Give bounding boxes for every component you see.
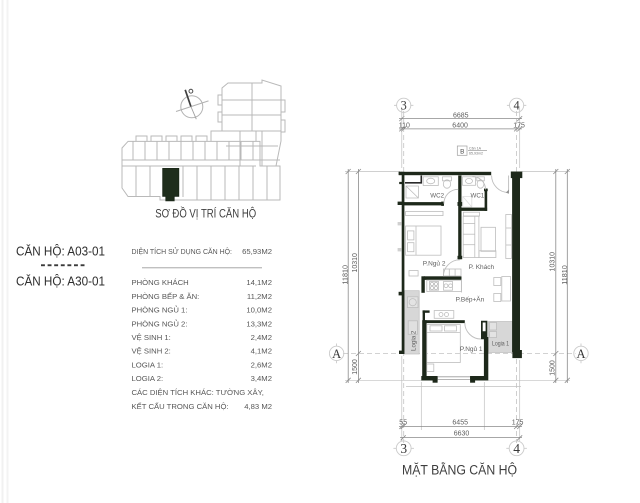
svg-text:CĂN HỘ: A30-01: CĂN HỘ: A30-01 bbox=[16, 274, 105, 289]
svg-text:PHÒNG NGỦ 1:: PHÒNG NGỦ 1: bbox=[132, 306, 188, 315]
svg-text:P.Bếp+Ăn: P.Bếp+Ăn bbox=[456, 295, 485, 304]
svg-text:14,1M2: 14,1M2 bbox=[246, 278, 272, 287]
svg-text:LOGIA 2:: LOGIA 2: bbox=[132, 374, 164, 383]
svg-text:6685: 6685 bbox=[453, 112, 469, 119]
svg-text:3: 3 bbox=[401, 99, 407, 113]
svg-text:CĂN HỘ: A03-01: CĂN HỘ: A03-01 bbox=[16, 244, 105, 259]
svg-text:175: 175 bbox=[512, 420, 524, 427]
svg-text:4,83 M2: 4,83 M2 bbox=[244, 402, 272, 411]
svg-text:DIỆN TÍCH SỬ DỤNG CĂN HỘ:: DIỆN TÍCH SỬ DỤNG CĂN HỘ: bbox=[132, 247, 233, 256]
svg-text:65,93m2: 65,93m2 bbox=[469, 152, 483, 156]
svg-text:13,3M2: 13,3M2 bbox=[246, 320, 272, 329]
svg-text:WC1: WC1 bbox=[471, 193, 485, 200]
svg-text:Logia 2: Logia 2 bbox=[411, 330, 418, 351]
svg-text:6630: 6630 bbox=[454, 431, 470, 438]
svg-text:110: 110 bbox=[399, 123, 410, 130]
svg-text:KẾT CẤU TRONG CĂN HỘ:: KẾT CẤU TRONG CĂN HỘ: bbox=[132, 401, 229, 411]
svg-text:3: 3 bbox=[400, 441, 407, 456]
svg-text:4: 4 bbox=[514, 99, 520, 113]
svg-text:4,1M2: 4,1M2 bbox=[251, 347, 272, 356]
svg-text:65,93M2: 65,93M2 bbox=[242, 247, 272, 256]
svg-text:Căn 1A: Căn 1A bbox=[469, 147, 482, 151]
svg-text:PHÒNG KHÁCH: PHÒNG KHÁCH bbox=[132, 278, 189, 287]
svg-text:B: B bbox=[460, 148, 464, 155]
svg-text:6455: 6455 bbox=[452, 420, 468, 427]
svg-text:10310: 10310 bbox=[548, 252, 557, 272]
svg-text:10310: 10310 bbox=[350, 253, 359, 273]
svg-text:MẶT BẰNG CĂN HỘ: MẶT BẰNG CĂN HỘ bbox=[402, 462, 517, 477]
svg-text:Logia 1: Logia 1 bbox=[492, 340, 509, 347]
svg-text:11810: 11810 bbox=[560, 265, 569, 285]
svg-text:LOGIA 1:: LOGIA 1: bbox=[132, 361, 164, 370]
svg-text:WC2: WC2 bbox=[430, 193, 444, 200]
svg-text:PHÒNG NGỦ 2:: PHÒNG NGỦ 2: bbox=[132, 320, 188, 329]
svg-text:11810: 11810 bbox=[340, 265, 349, 285]
svg-text:2,6M2: 2,6M2 bbox=[251, 361, 272, 370]
svg-text:10,0M2: 10,0M2 bbox=[246, 306, 272, 315]
svg-text:VỆ SINH 2:: VỆ SINH 2: bbox=[132, 347, 171, 356]
svg-text:P.Ngủ 1: P.Ngủ 1 bbox=[460, 345, 483, 353]
svg-text:6400: 6400 bbox=[452, 123, 468, 130]
svg-text:A: A bbox=[576, 347, 585, 361]
svg-text:2,4M2: 2,4M2 bbox=[251, 333, 272, 342]
svg-text:55: 55 bbox=[399, 420, 407, 427]
svg-text:CÁC DIỆN TÍCH KHÁC: TƯỜNG XÂY,: CÁC DIỆN TÍCH KHÁC: TƯỜNG XÂY, bbox=[132, 388, 264, 397]
svg-text:3,4M2: 3,4M2 bbox=[251, 374, 272, 383]
svg-text:1500: 1500 bbox=[548, 360, 557, 376]
svg-text:PHÒNG BẾP & ĂN:: PHÒNG BẾP & ĂN: bbox=[132, 291, 200, 301]
svg-text:SƠ ĐỒ VỊ TRÍ CĂN HỘ: SƠ ĐỒ VỊ TRÍ CĂN HỘ bbox=[155, 205, 256, 220]
svg-text:4: 4 bbox=[513, 441, 520, 456]
svg-text:1500: 1500 bbox=[350, 359, 359, 375]
svg-text:P. Khách: P. Khách bbox=[469, 264, 495, 271]
svg-text:P.Ngủ 2: P.Ngủ 2 bbox=[423, 260, 446, 268]
svg-text:11,2M2: 11,2M2 bbox=[247, 292, 272, 301]
svg-text:VỆ SINH 1:: VỆ SINH 1: bbox=[132, 333, 171, 342]
svg-text:175: 175 bbox=[513, 123, 525, 130]
svg-text:A: A bbox=[332, 347, 341, 361]
